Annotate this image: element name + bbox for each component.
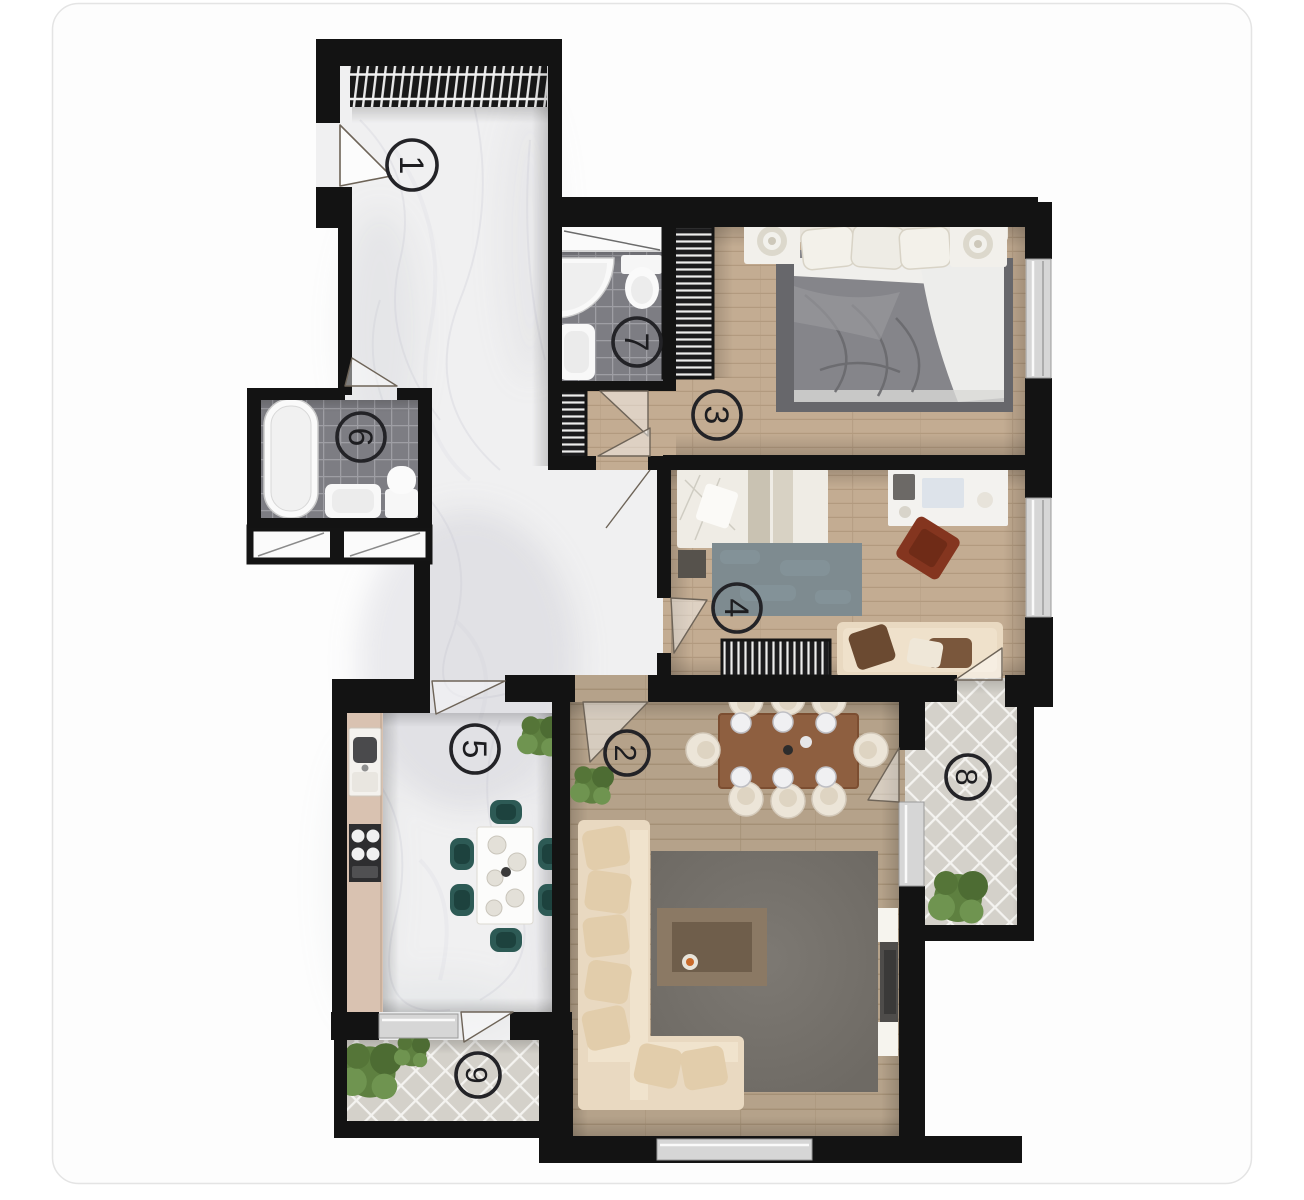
- svg-text:7: 7: [617, 333, 655, 352]
- svg-text:5: 5: [455, 740, 493, 759]
- svg-text:3: 3: [697, 406, 735, 425]
- svg-text:1: 1: [392, 156, 430, 175]
- svg-text:9: 9: [459, 1066, 494, 1083]
- svg-text:2: 2: [608, 744, 643, 761]
- svg-text:8: 8: [949, 768, 984, 785]
- svg-text:6: 6: [341, 428, 379, 447]
- svg-text:4: 4: [717, 599, 755, 618]
